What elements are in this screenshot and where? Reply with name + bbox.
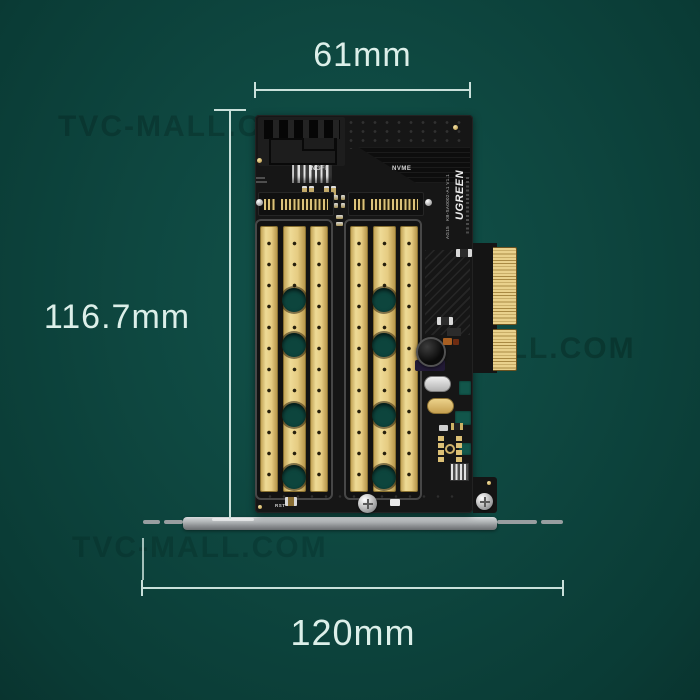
diode-dark (453, 339, 459, 345)
striped-connector-pads (450, 463, 469, 481)
rst-label: RST (275, 503, 286, 508)
standoff-hole-2242 (372, 333, 396, 357)
dimension-label-bottom-width: 120mm (142, 612, 564, 654)
dimension-label-left-height: 116.7mm (26, 298, 208, 337)
standoff-hole-2280 (282, 465, 306, 489)
product-dimension-diagram: TVC-MALL.COM TVC-MALL.COM TVC-MALL.COM 6… (0, 0, 700, 700)
dimension-line-bottom (142, 587, 564, 589)
standoff-pad (336, 215, 343, 219)
dimension-extension-bottom-left (142, 538, 144, 580)
standoff-hole-2242 (282, 333, 306, 357)
smd-part (439, 425, 448, 431)
adapter-card: NGFF NVME (255, 115, 517, 515)
dimension-tick-top-left (254, 82, 256, 98)
m2-socket-ngff (258, 192, 334, 216)
bracket-extension-right-1 (497, 520, 537, 524)
standoff-pad (336, 222, 343, 226)
smd-part (451, 423, 463, 430)
pcie-gold-fingers-short (493, 329, 517, 371)
gold-strip-wide (373, 226, 396, 492)
via-dot-grid (345, 118, 468, 149)
exposed-copper-patch (459, 381, 471, 395)
gold-strip-wide (283, 226, 306, 492)
batch-code-text: AG15 (445, 223, 450, 239)
tantalum-capacitor (427, 398, 454, 414)
dimension-line-left (229, 109, 231, 519)
resistor-pair (456, 249, 472, 257)
sata-connector (258, 117, 345, 166)
standoff-hole-2260 (282, 403, 306, 427)
standoff-hole-2230 (372, 288, 396, 312)
standoff-pad (334, 195, 338, 200)
dimension-tick-bottom-left (141, 580, 143, 596)
socket-end-rivet (425, 199, 432, 206)
socket-end-rivet (256, 199, 263, 206)
bracket-extension-left-2 (164, 520, 183, 524)
silkscreen-mark (256, 181, 267, 183)
pcie-gold-fingers-long (493, 247, 517, 325)
fiducial-dot (258, 505, 262, 509)
screw-slot (480, 501, 490, 503)
screw-slot (363, 503, 373, 505)
gold-strip (400, 226, 418, 492)
smd-part (447, 328, 461, 336)
standoff-hole-2280 (372, 465, 396, 489)
socket-key-notch (275, 198, 281, 211)
socket-key-notch (365, 198, 371, 211)
gold-strip (310, 226, 328, 492)
bracket-extension-left-1 (143, 520, 160, 524)
inductor-orange (443, 338, 452, 345)
bracket-extension-right-2 (541, 520, 563, 524)
smd-part (285, 497, 297, 506)
standoff-hole-2260 (372, 403, 396, 427)
socket-gold-pins (354, 199, 418, 210)
gold-strip (350, 226, 368, 492)
standoff-pad (341, 195, 345, 200)
dimension-line-top (255, 89, 471, 91)
ugreen-logo-text: UGREEN (454, 170, 466, 220)
dimension-tick-bottom-right (562, 580, 564, 596)
led-white (390, 499, 400, 506)
silkscreen-mark (256, 177, 265, 179)
resistor-pair (437, 317, 453, 325)
model-number-text: KB-SA0002-A1 V1.1 (445, 175, 450, 221)
gold-strip (260, 226, 278, 492)
bracket-screw (476, 493, 493, 510)
soic-pad-column (456, 436, 462, 463)
soic-pad-column (438, 436, 444, 463)
standoff-hole-2230 (282, 288, 306, 312)
dimension-label-top-width: 61mm (255, 36, 470, 75)
serial-text-faint (466, 177, 469, 235)
socket-gold-pins (264, 199, 328, 210)
crystal-oscillator (424, 376, 451, 392)
ngff-label: NGFF (311, 166, 329, 172)
sata-slot-row (264, 120, 340, 139)
fiducial-dot (487, 481, 491, 485)
dimension-tick-top-right (469, 82, 471, 98)
standoff-pad (334, 203, 338, 208)
mount-gold-dot (453, 125, 458, 130)
soic-center-ring (445, 444, 455, 454)
electrolytic-capacitor (416, 337, 446, 367)
bracket-highlight (212, 518, 254, 521)
watermark-bottom-left: TVC-MALL.COM (72, 531, 328, 565)
nvme-label: NVME (392, 166, 411, 172)
led-gold-dot (257, 158, 262, 163)
standoff-screw (358, 494, 377, 513)
sata-key-step (302, 138, 336, 151)
m2-socket-nvme (348, 192, 424, 216)
standoff-pad (341, 203, 345, 208)
